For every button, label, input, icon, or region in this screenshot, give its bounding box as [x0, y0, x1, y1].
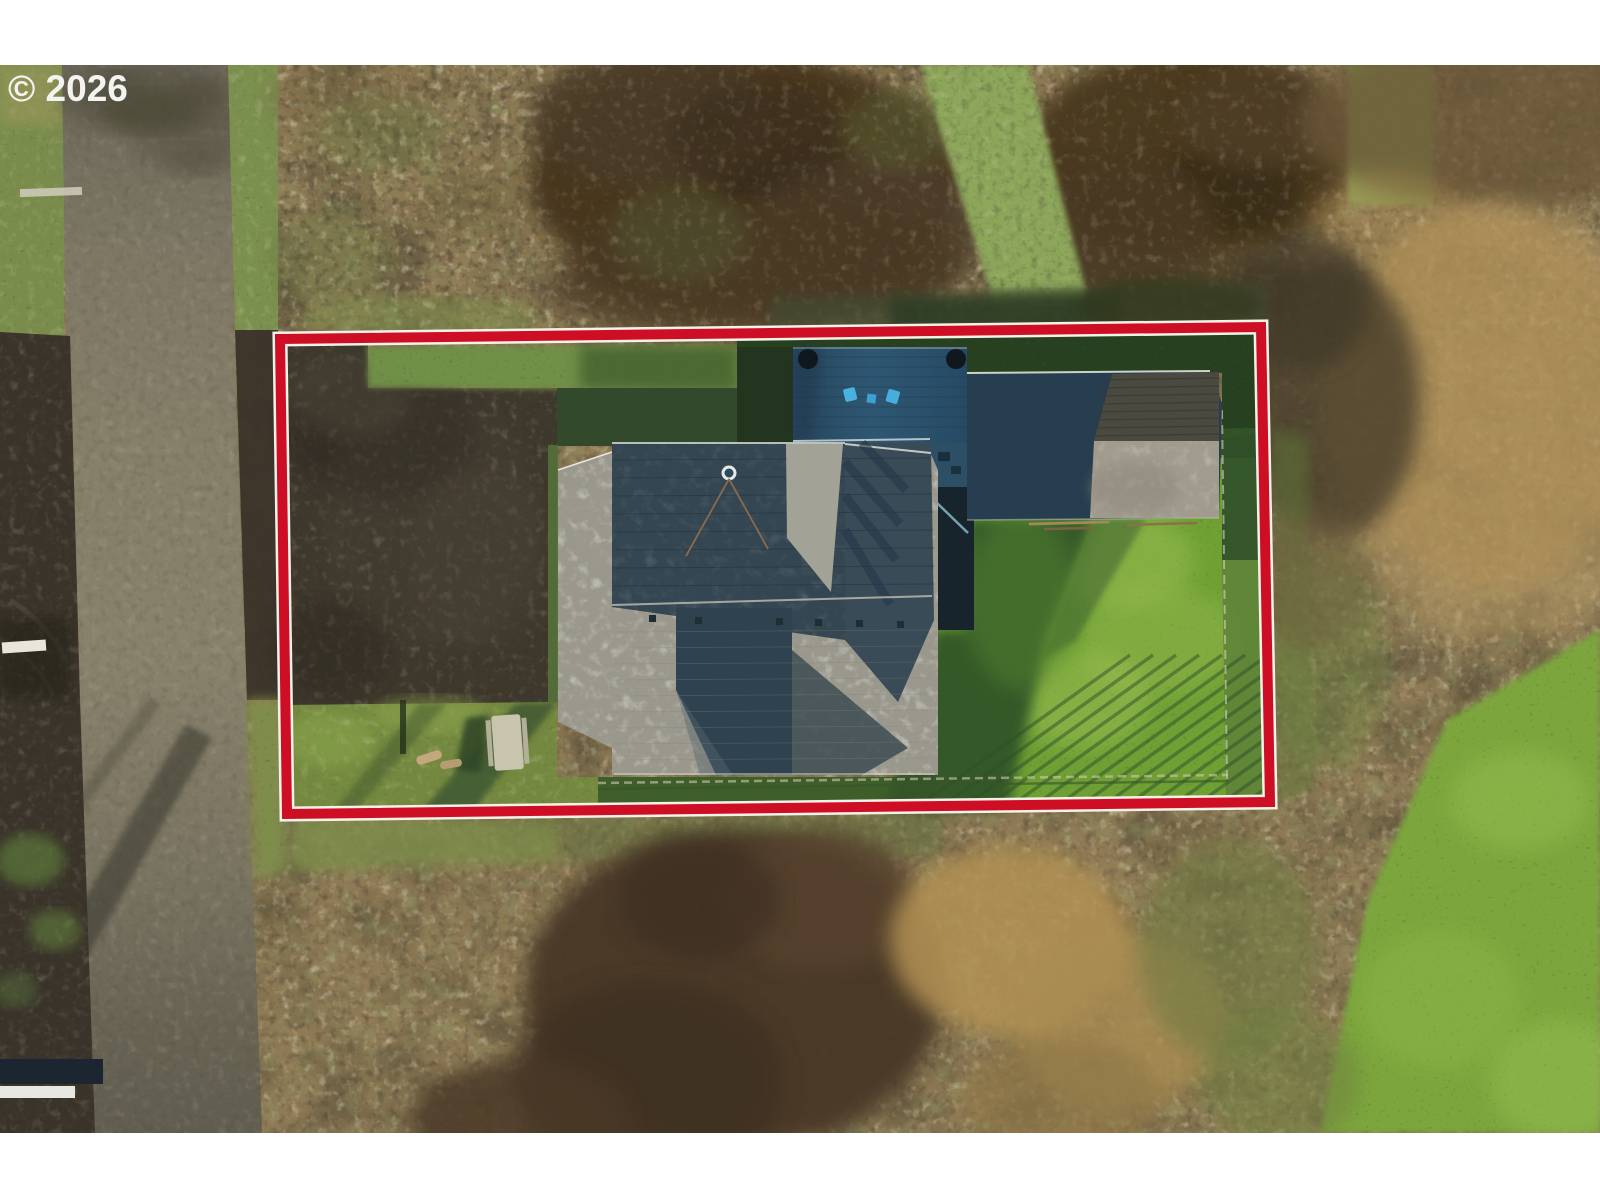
- svg-text:© 2026: © 2026: [8, 68, 128, 109]
